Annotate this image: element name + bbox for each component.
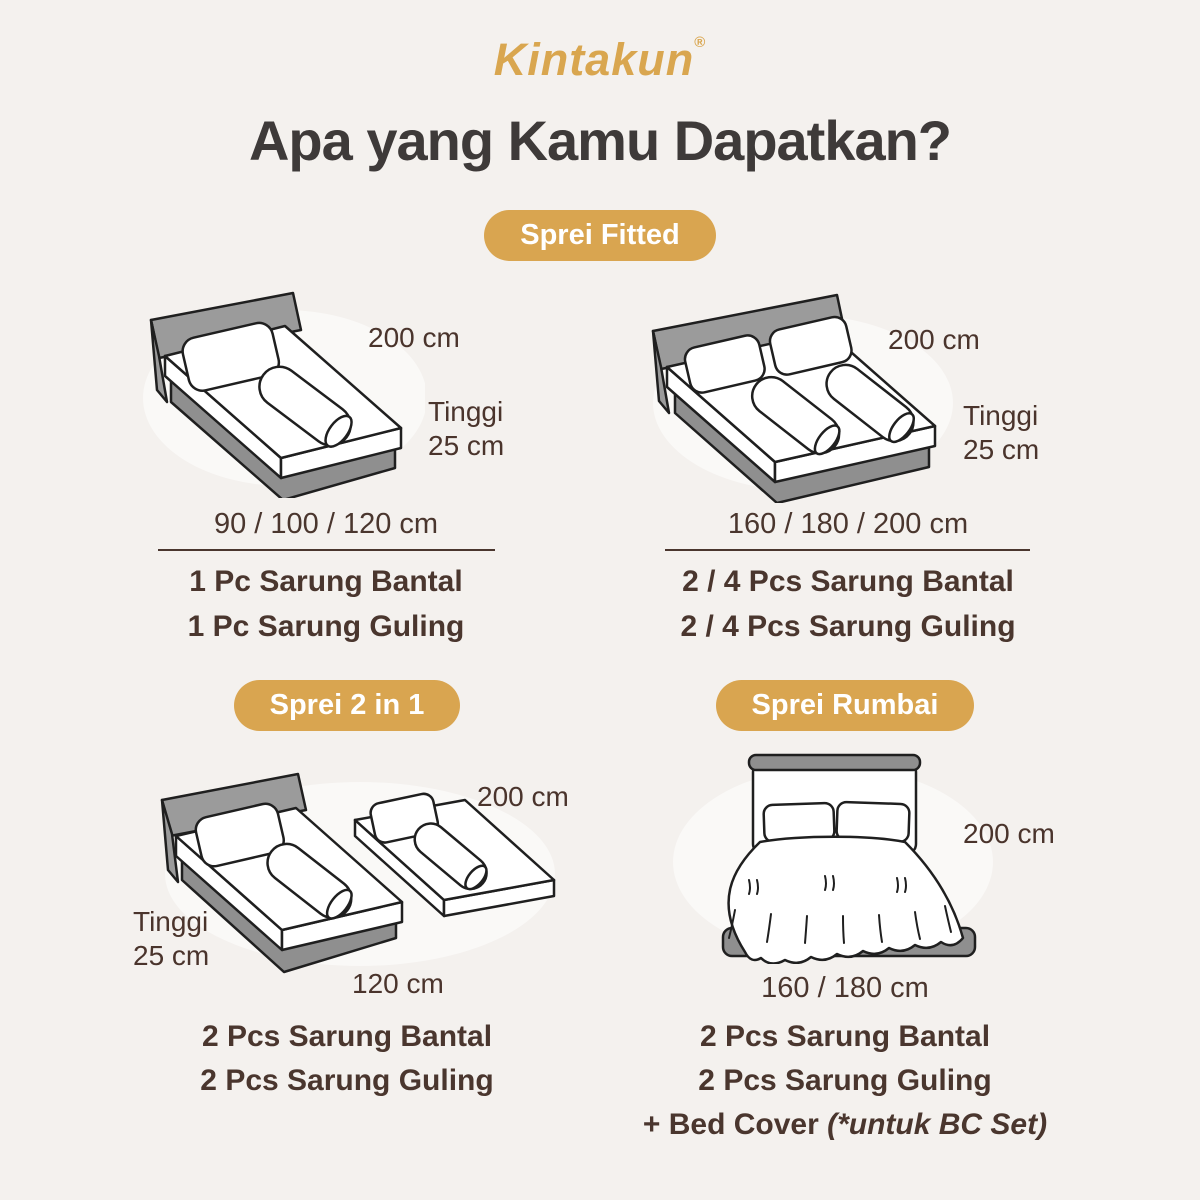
badge-sprei-2in1: Sprei 2 in 1 bbox=[234, 680, 461, 731]
item-fitted-large-2: 2 / 4 Pcs Sarung Guling bbox=[598, 610, 1098, 644]
dim-height1-fitted-small: Tinggi bbox=[428, 396, 503, 428]
badge-row-two-in-one: Sprei 2 in 1 bbox=[47, 680, 647, 731]
item-fitted-small-2: 1 Pc Sarung Guling bbox=[26, 610, 626, 644]
badge-row-fitted: Sprei Fitted bbox=[0, 210, 1200, 261]
item-rumbai-3: + Bed Cover (*untuk BC Set) bbox=[595, 1108, 1095, 1142]
registered-mark: ® bbox=[694, 34, 706, 51]
badge-sprei-fitted: Sprei Fitted bbox=[484, 210, 716, 261]
page-title: Apa yang Kamu Dapatkan? bbox=[0, 108, 1200, 173]
dim-height2-fitted-small: 25 cm bbox=[428, 430, 504, 462]
item-fitted-large-1: 2 / 4 Pcs Sarung Bantal bbox=[598, 565, 1098, 599]
item-rumbai-1: 2 Pcs Sarung Bantal bbox=[595, 1020, 1095, 1054]
brand-logo-text: Kintakun bbox=[494, 34, 695, 85]
rumbai-bed-illustration bbox=[665, 752, 995, 964]
dim-width-rumbai: 200 cm bbox=[963, 818, 1055, 850]
bed-cover-note: (*untuk BC Set) bbox=[827, 1108, 1047, 1141]
dim-width-fitted-large: 200 cm bbox=[888, 324, 980, 356]
dim-height1-fitted-large: Tinggi bbox=[963, 400, 1038, 432]
bed-cover-text: + Bed Cover bbox=[643, 1108, 827, 1141]
dim-bottom-2in1: 120 cm bbox=[352, 968, 444, 1000]
single-bed-illustration bbox=[135, 286, 425, 498]
item-rumbai-2: 2 Pcs Sarung Guling bbox=[595, 1064, 1095, 1098]
double-bed-illustration bbox=[645, 291, 955, 503]
item-fitted-small-1: 1 Pc Sarung Bantal bbox=[26, 565, 626, 599]
sizes-fitted-large: 160 / 180 / 200 cm bbox=[598, 508, 1098, 541]
brand-logo: Kintakun® bbox=[0, 34, 1200, 86]
badge-sprei-rumbai: Sprei Rumbai bbox=[716, 680, 975, 731]
item-2in1-1: 2 Pcs Sarung Bantal bbox=[47, 1020, 647, 1054]
dim-height1-2in1: Tinggi bbox=[133, 906, 208, 938]
dim-height2-2in1: 25 cm bbox=[133, 940, 209, 972]
dim-width-fitted-small: 200 cm bbox=[368, 322, 460, 354]
dim-bottom-rumbai: 160 / 180 cm bbox=[595, 972, 1095, 1005]
kintakun-infographic: Kintakun® Apa yang Kamu Dapatkan? Sprei … bbox=[0, 0, 1200, 1200]
divider-right bbox=[665, 549, 1030, 551]
dim-height2-fitted-large: 25 cm bbox=[963, 434, 1039, 466]
badge-row-rumbai: Sprei Rumbai bbox=[595, 680, 1095, 731]
divider-left bbox=[158, 549, 495, 551]
item-2in1-2: 2 Pcs Sarung Guling bbox=[47, 1064, 647, 1098]
sizes-fitted-small: 90 / 100 / 120 cm bbox=[26, 508, 626, 541]
dim-width-2in1: 200 cm bbox=[477, 781, 569, 813]
